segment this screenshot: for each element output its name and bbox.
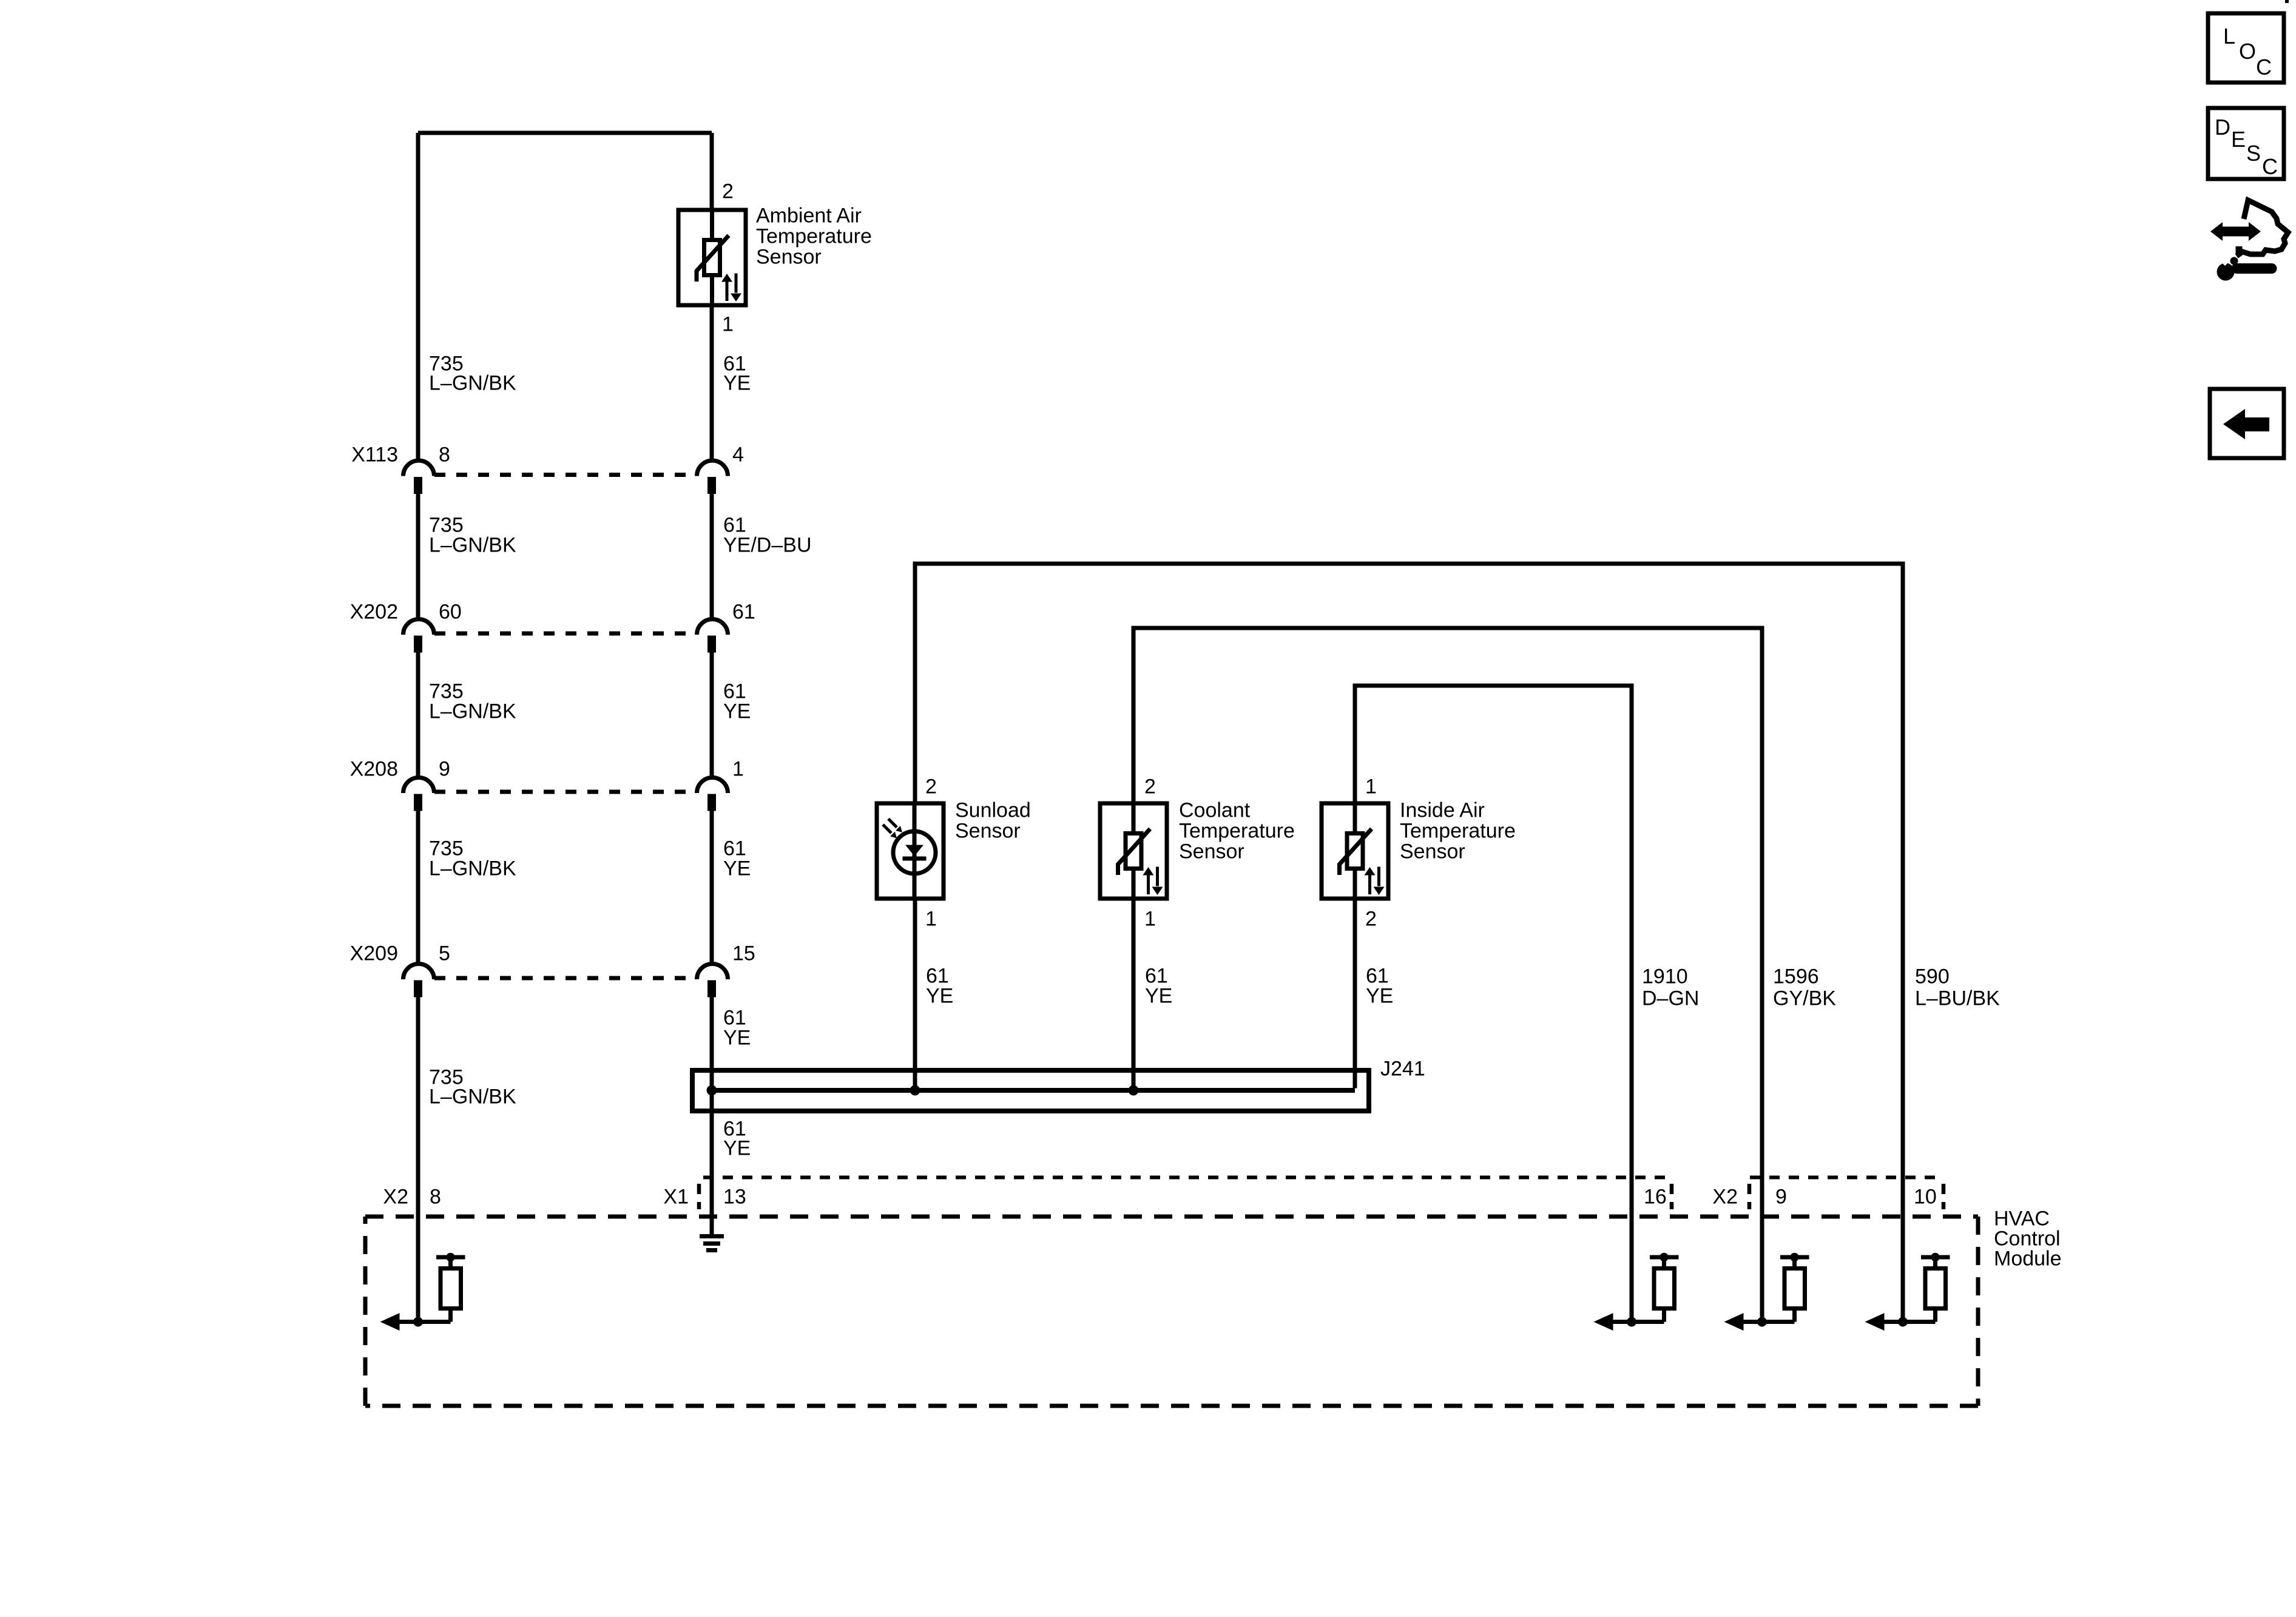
svg-text:X2: X2 — [1712, 1186, 1738, 1209]
svg-text:YE: YE — [1145, 985, 1172, 1008]
svg-text:2: 2 — [1365, 908, 1377, 931]
svg-text:L: L — [2223, 24, 2235, 49]
svg-text:1910: 1910 — [1642, 965, 1688, 988]
svg-text:Sensor: Sensor — [1179, 840, 1244, 863]
svg-text:E: E — [2231, 127, 2246, 152]
svg-text:5: 5 — [439, 942, 450, 965]
svg-text:X2: X2 — [383, 1186, 408, 1209]
svg-text:D–GN: D–GN — [1642, 987, 1699, 1010]
svg-text:L–GN/BK: L–GN/BK — [429, 700, 516, 723]
svg-text:X208: X208 — [350, 758, 398, 781]
svg-text:YE: YE — [723, 372, 751, 395]
svg-text:X113: X113 — [351, 444, 398, 467]
svg-text:X209: X209 — [350, 942, 398, 965]
svg-text:Inside Air: Inside Air — [1400, 799, 1485, 822]
svg-text:O: O — [2239, 39, 2256, 64]
svg-text:61: 61 — [732, 601, 755, 624]
svg-text:S: S — [2246, 141, 2261, 166]
svg-text:Module: Module — [1994, 1247, 2062, 1271]
svg-text:1: 1 — [722, 313, 734, 336]
svg-text:1: 1 — [1365, 775, 1377, 798]
svg-text:YE: YE — [723, 1137, 751, 1160]
svg-text:9: 9 — [1775, 1186, 1787, 1209]
svg-text:Sensor: Sensor — [955, 820, 1021, 843]
svg-text:16: 16 — [1644, 1186, 1667, 1209]
svg-text:YE: YE — [723, 1027, 751, 1050]
svg-text:8: 8 — [430, 1186, 441, 1209]
svg-text:L–GN/BK: L–GN/BK — [429, 372, 516, 395]
svg-text:Temperature: Temperature — [756, 225, 872, 248]
svg-text:YE: YE — [723, 700, 751, 723]
svg-text:2: 2 — [722, 180, 734, 203]
svg-text:YE: YE — [1366, 985, 1393, 1008]
svg-text:8: 8 — [439, 444, 450, 467]
svg-text:60: 60 — [439, 601, 462, 624]
svg-text:D: D — [2215, 115, 2230, 140]
svg-text:X202: X202 — [350, 601, 398, 624]
svg-text:13: 13 — [723, 1186, 746, 1209]
svg-text:Coolant: Coolant — [1179, 799, 1251, 822]
svg-text:L–BU/BK: L–BU/BK — [1915, 987, 2000, 1010]
svg-text:15: 15 — [732, 942, 755, 965]
svg-text:1596: 1596 — [1773, 965, 1819, 988]
svg-text:1: 1 — [1144, 908, 1156, 931]
svg-text:590: 590 — [1915, 965, 1950, 988]
svg-text:Sensor: Sensor — [756, 246, 822, 269]
svg-text:L–GN/BK: L–GN/BK — [429, 534, 516, 557]
svg-text:Temperature: Temperature — [1400, 820, 1516, 843]
svg-text:1: 1 — [925, 908, 937, 931]
svg-text:Sunload: Sunload — [955, 799, 1031, 822]
svg-text:X1: X1 — [663, 1186, 689, 1209]
svg-text:Sensor: Sensor — [1400, 840, 1465, 863]
svg-text:10: 10 — [1914, 1186, 1937, 1209]
svg-text:C: C — [2262, 154, 2278, 179]
svg-text:Temperature: Temperature — [1179, 820, 1295, 843]
svg-text:2: 2 — [1144, 775, 1156, 798]
svg-text:J241: J241 — [1380, 1058, 1425, 1081]
svg-text:C: C — [2256, 55, 2272, 79]
svg-text:YE/D–BU: YE/D–BU — [723, 534, 812, 557]
svg-text:9: 9 — [439, 758, 450, 781]
svg-text:YE: YE — [723, 857, 751, 880]
svg-text:YE: YE — [926, 985, 953, 1008]
svg-text:2: 2 — [925, 775, 937, 798]
svg-text:Ambient Air: Ambient Air — [756, 204, 862, 228]
svg-text:1: 1 — [732, 758, 744, 781]
svg-text:GY/BK: GY/BK — [1773, 987, 1836, 1010]
svg-text:L–GN/BK: L–GN/BK — [429, 1085, 516, 1109]
svg-text:L–GN/BK: L–GN/BK — [429, 857, 516, 880]
svg-text:4: 4 — [732, 444, 744, 467]
